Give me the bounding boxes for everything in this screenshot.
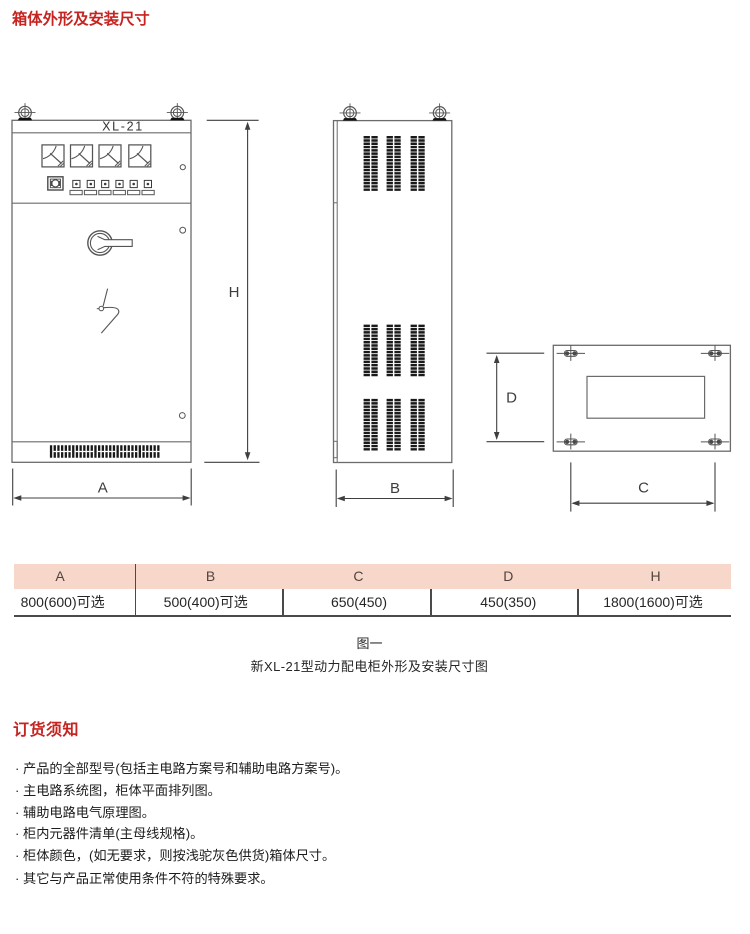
svg-text:C: C [638, 480, 649, 497]
svg-text:XL-21: XL-21 [102, 120, 144, 134]
svg-text:B: B [390, 480, 400, 497]
svg-text:D: D [506, 389, 517, 406]
svg-text:H: H [229, 284, 240, 301]
svg-text:A: A [98, 480, 108, 497]
